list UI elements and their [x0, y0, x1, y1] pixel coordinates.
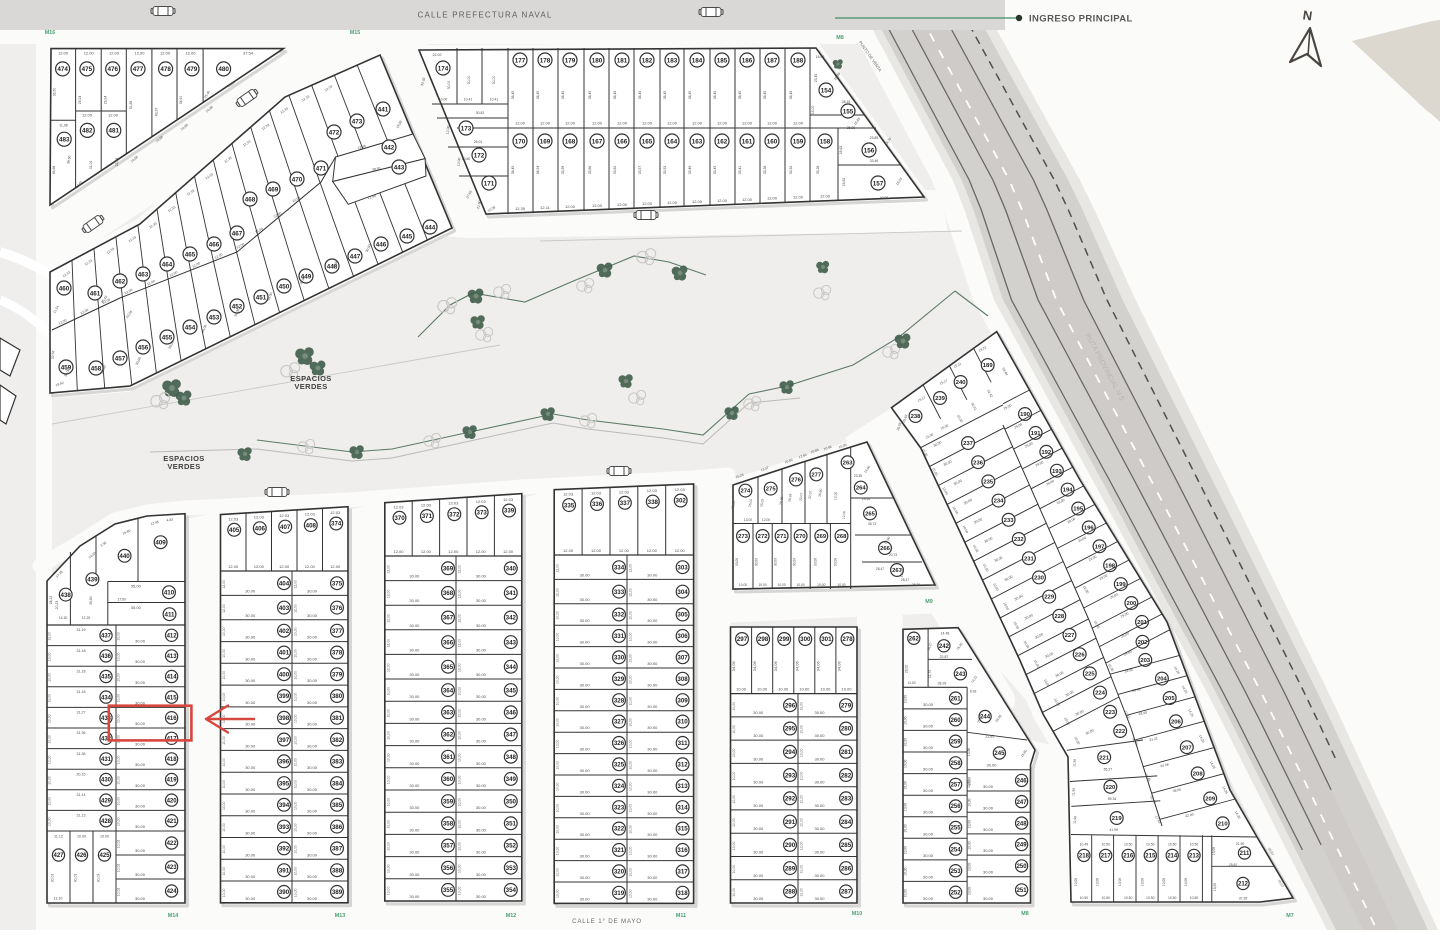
svg-text:416: 416 [167, 716, 178, 722]
svg-text:160: 160 [767, 138, 778, 145]
svg-text:31.18: 31.18 [77, 649, 86, 653]
svg-text:366: 366 [443, 639, 454, 646]
svg-text:30.00: 30.00 [409, 827, 420, 832]
svg-text:157: 157 [873, 180, 884, 187]
svg-text:10,00: 10,00 [1074, 878, 1078, 886]
svg-text:293: 293 [785, 772, 796, 779]
svg-text:10,00: 10,00 [629, 654, 633, 663]
svg-text:298: 298 [758, 636, 769, 643]
svg-text:36,80: 36,80 [89, 596, 93, 605]
svg-text:10,00: 10,00 [758, 583, 766, 587]
svg-text:223: 223 [1105, 710, 1116, 716]
svg-text:10.00: 10.00 [757, 687, 768, 692]
svg-text:38,45: 38,45 [613, 91, 617, 100]
svg-text:10,00: 10,00 [629, 889, 633, 898]
svg-text:209: 209 [1205, 797, 1216, 803]
svg-text:12,00: 12,00 [629, 588, 633, 597]
svg-text:271: 271 [777, 534, 788, 540]
svg-text:30.00: 30.00 [647, 640, 658, 645]
svg-text:315: 315 [677, 826, 688, 833]
svg-text:30.00: 30.00 [245, 765, 256, 770]
svg-text:37.54: 37.54 [243, 51, 254, 56]
svg-text:274: 274 [740, 489, 751, 495]
svg-text:31.18: 31.18 [77, 690, 86, 694]
svg-text:36,54: 36,54 [536, 166, 540, 175]
svg-text:10,00: 10,00 [800, 888, 804, 897]
svg-text:30.00: 30.00 [476, 761, 487, 766]
svg-text:10,00: 10,00 [458, 687, 462, 696]
svg-text:10,00: 10,00 [294, 736, 298, 745]
svg-text:M10: M10 [852, 911, 863, 917]
svg-text:M9: M9 [925, 599, 933, 605]
svg-text:185: 185 [717, 57, 728, 64]
svg-text:184: 184 [692, 57, 703, 64]
svg-text:255: 255 [951, 826, 962, 832]
svg-text:238: 238 [911, 414, 922, 420]
svg-text:30.00: 30.00 [986, 763, 997, 768]
svg-text:10,00: 10,00 [48, 714, 52, 723]
svg-text:389: 389 [332, 889, 343, 896]
svg-text:351: 351 [506, 821, 517, 828]
svg-text:10,00: 10,00 [294, 758, 298, 767]
svg-text:10,00: 10,00 [386, 820, 390, 829]
svg-text:451: 451 [256, 294, 267, 301]
svg-text:412: 412 [167, 634, 178, 640]
svg-text:297: 297 [737, 636, 748, 643]
svg-text:45,68: 45,68 [52, 166, 56, 175]
svg-text:299: 299 [779, 636, 790, 643]
svg-text:38,45: 38,45 [713, 91, 717, 100]
svg-text:30.00: 30.00 [307, 874, 318, 879]
svg-text:13,96: 13,96 [967, 748, 971, 756]
svg-text:430: 430 [101, 778, 112, 784]
svg-text:10.50: 10.50 [1190, 896, 1199, 900]
svg-text:12.00: 12.00 [109, 51, 120, 56]
svg-text:12.00: 12.00 [330, 564, 341, 569]
svg-text:12,00: 12,00 [458, 614, 462, 623]
svg-text:12,00: 12,00 [556, 588, 560, 597]
svg-text:405: 405 [229, 527, 240, 534]
svg-text:400: 400 [279, 672, 290, 679]
svg-text:10.50: 10.50 [1101, 843, 1110, 847]
svg-text:421: 421 [167, 819, 178, 825]
svg-text:29.54: 29.54 [862, 497, 870, 501]
svg-text:235: 235 [983, 480, 994, 486]
svg-text:251: 251 [1017, 888, 1028, 894]
svg-text:10,00: 10,00 [294, 801, 298, 810]
svg-text:10,00: 10,00 [800, 865, 804, 874]
svg-text:10,00: 10,00 [629, 825, 633, 834]
svg-text:35.89: 35.89 [847, 126, 856, 130]
svg-text:10,00: 10,00 [556, 697, 560, 706]
svg-text:420: 420 [167, 798, 178, 804]
svg-text:12.00: 12.00 [160, 51, 171, 56]
svg-text:30.00: 30.00 [476, 783, 487, 788]
svg-text:30.00: 30.00 [476, 872, 487, 877]
svg-text:11.12: 11.12 [54, 835, 63, 839]
svg-text:431: 431 [101, 757, 112, 763]
svg-text:10.00: 10.00 [439, 98, 448, 102]
svg-text:269: 269 [816, 534, 827, 540]
svg-text:264: 264 [856, 486, 867, 492]
svg-text:15,00: 15,00 [1212, 847, 1216, 855]
svg-text:396: 396 [279, 759, 290, 766]
svg-text:10,00: 10,00 [777, 583, 785, 587]
svg-text:30.00: 30.00 [580, 682, 591, 687]
svg-text:321: 321 [614, 847, 625, 854]
svg-text:10,00: 10,00 [48, 694, 52, 703]
svg-text:476: 476 [107, 66, 118, 73]
svg-text:30.00: 30.00 [245, 787, 256, 792]
svg-text:362: 362 [443, 732, 454, 739]
svg-text:30.00: 30.00 [135, 659, 146, 664]
svg-text:12.03: 12.03 [330, 510, 341, 515]
svg-text:30.15: 30.15 [77, 772, 86, 776]
svg-text:10,00: 10,00 [968, 820, 972, 828]
svg-text:181: 181 [617, 57, 628, 64]
svg-text:10,00: 10,00 [629, 697, 633, 706]
svg-text:230: 230 [1034, 576, 1045, 582]
svg-text:CALLE 1° DE MAYO: CALLE 1° DE MAYO [572, 918, 642, 925]
svg-text:303: 303 [677, 564, 688, 571]
svg-text:30.00: 30.00 [409, 694, 420, 699]
svg-text:388: 388 [332, 867, 343, 874]
svg-text:30.00: 30.00 [245, 743, 256, 748]
svg-text:30.00: 30.00 [647, 832, 658, 837]
svg-text:359: 359 [443, 798, 454, 805]
svg-text:M8: M8 [836, 35, 844, 41]
svg-text:30.00: 30.00 [647, 747, 658, 752]
svg-text:265: 265 [865, 512, 876, 518]
svg-text:12.00: 12.00 [767, 121, 778, 126]
svg-text:155: 155 [843, 108, 854, 115]
svg-text:10,00: 10,00 [1118, 878, 1122, 886]
svg-text:294: 294 [785, 749, 796, 756]
svg-text:280: 280 [841, 726, 852, 733]
svg-text:38,45: 38,45 [588, 91, 592, 100]
svg-text:239: 239 [935, 396, 946, 402]
svg-text:30.00: 30.00 [307, 743, 318, 748]
svg-text:31.13: 31.13 [77, 814, 86, 818]
svg-text:10,00: 10,00 [48, 735, 52, 744]
svg-text:38,45: 38,45 [561, 91, 565, 100]
svg-text:30.00: 30.00 [753, 826, 764, 831]
svg-text:VERDES: VERDES [294, 382, 327, 391]
svg-text:10,00: 10,00 [458, 842, 462, 851]
svg-text:257: 257 [951, 783, 962, 789]
svg-text:453: 453 [209, 314, 220, 321]
svg-text:215: 215 [1145, 854, 1156, 860]
svg-text:367: 367 [443, 615, 454, 622]
svg-text:248: 248 [1017, 821, 1028, 827]
svg-text:12.11: 12.11 [540, 205, 550, 210]
svg-text:273: 273 [738, 534, 749, 540]
svg-text:34,06: 34,06 [731, 661, 736, 672]
svg-text:12.00: 12.00 [448, 549, 459, 554]
svg-text:258: 258 [951, 761, 962, 767]
svg-text:12.00: 12.00 [563, 548, 574, 553]
svg-text:159: 159 [793, 138, 804, 145]
svg-text:30.00: 30.00 [409, 805, 420, 810]
svg-text:34,06: 34,06 [815, 661, 820, 672]
svg-text:30.00: 30.00 [580, 768, 591, 773]
svg-text:210: 210 [1218, 821, 1229, 827]
svg-text:33,99: 33,99 [561, 166, 565, 175]
svg-text:12,00: 12,00 [629, 564, 633, 573]
svg-text:469: 469 [268, 186, 279, 193]
svg-text:10,00: 10,00 [294, 823, 298, 832]
svg-text:411: 411 [165, 611, 176, 618]
svg-text:275: 275 [766, 487, 777, 493]
svg-text:10,00: 10,00 [556, 825, 560, 834]
svg-text:288: 288 [785, 889, 796, 896]
svg-text:28,47: 28,47 [876, 567, 884, 571]
svg-text:409: 409 [155, 539, 166, 546]
svg-text:30.00: 30.00 [580, 704, 591, 709]
svg-text:454: 454 [185, 324, 196, 331]
svg-text:212: 212 [1238, 882, 1249, 888]
svg-text:348: 348 [506, 754, 517, 761]
svg-text:263: 263 [843, 460, 854, 466]
svg-text:252: 252 [951, 890, 962, 896]
svg-text:30.00: 30.00 [307, 787, 318, 792]
svg-text:194: 194 [1063, 488, 1074, 494]
svg-text:167: 167 [592, 138, 603, 145]
svg-text:12,00: 12,00 [458, 639, 462, 648]
svg-text:12.03: 12.03 [503, 497, 514, 502]
svg-text:30.00: 30.00 [983, 827, 994, 832]
svg-text:38,45: 38,45 [663, 91, 667, 100]
svg-text:30.00: 30.00 [307, 722, 318, 727]
svg-text:10,00: 10,00 [732, 842, 736, 851]
svg-text:10,02: 10,02 [117, 840, 121, 849]
svg-text:30.00: 30.00 [135, 872, 146, 877]
svg-text:30.00: 30.00 [580, 640, 591, 645]
svg-text:34,06: 34,06 [752, 661, 757, 672]
svg-text:461: 461 [90, 290, 101, 297]
svg-text:26,01: 26,01 [474, 140, 483, 144]
svg-text:12.00: 12.00 [667, 200, 678, 205]
svg-text:10.50: 10.50 [1168, 896, 1177, 900]
svg-text:464: 464 [162, 261, 173, 268]
svg-text:20,73: 20,73 [889, 553, 897, 557]
svg-text:10,00: 10,00 [629, 782, 633, 791]
svg-text:12.00: 12.00 [82, 113, 93, 118]
svg-text:428: 428 [101, 819, 112, 825]
svg-text:30.00: 30.00 [135, 680, 146, 685]
svg-text:320: 320 [614, 869, 625, 876]
svg-text:10,00: 10,00 [800, 795, 804, 804]
svg-text:304: 304 [677, 589, 688, 596]
svg-text:30.00: 30.00 [135, 803, 146, 808]
svg-text:10.41: 10.41 [464, 98, 473, 102]
svg-text:233: 233 [1004, 518, 1015, 524]
svg-text:328: 328 [614, 697, 625, 704]
svg-text:329: 329 [614, 676, 625, 683]
svg-text:30.00: 30.00 [580, 618, 591, 623]
svg-text:12.00: 12.00 [108, 113, 119, 118]
svg-text:334: 334 [614, 564, 625, 571]
svg-text:10,00: 10,00 [904, 803, 908, 811]
svg-text:30.00: 30.00 [983, 784, 994, 789]
svg-text:382: 382 [332, 737, 343, 744]
svg-text:12,00: 12,00 [556, 564, 560, 573]
svg-text:30.00: 30.00 [814, 873, 825, 878]
svg-text:30.00: 30.00 [580, 747, 591, 752]
svg-text:36,20: 36,20 [912, 583, 920, 587]
svg-text:30.82: 30.82 [476, 111, 485, 115]
svg-text:282: 282 [841, 772, 852, 779]
svg-text:237: 237 [963, 441, 974, 447]
svg-text:12,00: 12,00 [222, 580, 226, 589]
svg-text:40.96: 40.96 [880, 196, 889, 200]
svg-text:10,00: 10,00 [48, 653, 52, 662]
svg-text:14.30: 14.30 [59, 616, 68, 620]
svg-text:30.00: 30.00 [923, 874, 934, 879]
svg-text:166: 166 [617, 138, 628, 145]
svg-text:10,00: 10,00 [458, 731, 462, 740]
svg-text:345: 345 [506, 687, 517, 694]
svg-text:30.00: 30.00 [409, 783, 420, 788]
svg-text:38,45: 38,45 [763, 91, 767, 100]
svg-text:13.00: 13.00 [744, 518, 752, 522]
svg-text:17,50: 17,50 [118, 598, 127, 602]
svg-text:10,00: 10,00 [968, 887, 972, 895]
svg-text:12.00: 12.00 [592, 203, 603, 208]
svg-text:10,00: 10,00 [386, 864, 390, 873]
svg-text:30.00: 30.00 [647, 854, 658, 859]
svg-text:193: 193 [1052, 469, 1063, 475]
svg-text:10,00: 10,00 [556, 718, 560, 727]
svg-text:191: 191 [1031, 431, 1042, 437]
svg-text:262: 262 [909, 636, 920, 642]
svg-text:11,98: 11,98 [1073, 816, 1078, 824]
svg-text:12.00: 12.00 [305, 564, 316, 569]
svg-text:10,00: 10,00 [117, 714, 121, 723]
svg-text:37.35: 37.35 [1239, 897, 1248, 901]
svg-text:343: 343 [506, 639, 517, 646]
svg-text:10,00: 10,00 [817, 583, 825, 587]
svg-text:10,00: 10,00 [294, 714, 298, 723]
svg-text:313: 313 [677, 783, 688, 790]
svg-text:30.00: 30.00 [476, 694, 487, 699]
svg-text:30.00: 30.00 [814, 803, 825, 808]
svg-text:30.00: 30.00 [135, 783, 146, 788]
svg-text:30,00: 30,00 [735, 558, 739, 566]
svg-text:10,00: 10,00 [629, 611, 633, 620]
svg-text:33,66: 33,66 [588, 166, 592, 175]
svg-text:10,00: 10,00 [556, 654, 560, 663]
svg-text:163: 163 [692, 138, 703, 145]
svg-text:12.00: 12.00 [540, 121, 551, 126]
svg-text:384: 384 [332, 780, 343, 787]
svg-text:30.00: 30.00 [580, 811, 591, 816]
svg-text:330: 330 [614, 655, 625, 662]
svg-text:10.00: 10.00 [799, 687, 810, 692]
svg-text:10,00: 10,00 [117, 776, 121, 785]
svg-text:12,00: 12,00 [458, 663, 462, 672]
svg-text:289: 289 [785, 865, 796, 872]
svg-text:10,00: 10,00 [117, 694, 121, 703]
svg-text:479: 479 [187, 66, 198, 73]
svg-text:10,00: 10,00 [222, 823, 226, 832]
svg-text:390: 390 [279, 889, 290, 896]
svg-text:10,00: 10,00 [904, 716, 908, 724]
svg-text:10.50: 10.50 [1168, 843, 1177, 847]
svg-text:356: 356 [443, 865, 454, 872]
svg-text:10,00: 10,00 [796, 583, 804, 587]
svg-text:12.00: 12.00 [642, 121, 653, 126]
svg-text:437: 437 [101, 634, 112, 640]
svg-text:30.00: 30.00 [245, 722, 256, 727]
svg-text:10.50: 10.50 [1124, 896, 1133, 900]
svg-text:195: 195 [1073, 507, 1084, 513]
svg-text:164: 164 [667, 138, 678, 145]
svg-text:16,62: 16,62 [842, 178, 846, 187]
svg-text:352: 352 [506, 843, 517, 850]
svg-text:30.00: 30.00 [135, 762, 146, 767]
svg-text:30.00: 30.00 [476, 598, 487, 603]
svg-text:10,00: 10,00 [629, 740, 633, 749]
svg-text:30.00: 30.00 [753, 710, 764, 715]
svg-text:436: 436 [101, 654, 112, 660]
svg-text:10,00: 10,00 [117, 797, 121, 806]
svg-text:12.03: 12.03 [448, 501, 459, 506]
svg-text:10,00: 10,00 [222, 693, 226, 702]
svg-text:205: 205 [1165, 696, 1176, 702]
svg-text:427: 427 [53, 853, 64, 859]
svg-text:272: 272 [758, 534, 769, 540]
svg-text:20,80: 20,80 [462, 157, 471, 161]
svg-text:10,00: 10,00 [386, 687, 390, 696]
svg-text:33,57: 33,57 [638, 166, 642, 175]
svg-text:32,58: 32,58 [51, 350, 56, 359]
svg-text:225: 225 [1085, 672, 1096, 678]
svg-text:30.00: 30.00 [647, 768, 658, 773]
svg-text:30.00: 30.00 [245, 700, 256, 705]
svg-text:10,00: 10,00 [800, 748, 804, 757]
svg-text:30.00: 30.00 [753, 803, 764, 808]
svg-text:462: 462 [115, 278, 126, 285]
svg-text:186: 186 [742, 57, 753, 64]
svg-text:10,00: 10,00 [222, 801, 226, 810]
svg-text:475: 475 [82, 66, 93, 73]
svg-text:425: 425 [99, 853, 110, 859]
svg-text:10,00: 10,00 [904, 824, 908, 832]
svg-text:30.00: 30.00 [753, 780, 764, 785]
svg-text:30.00: 30.00 [307, 700, 318, 705]
svg-text:211: 211 [1240, 851, 1250, 857]
svg-text:23.35: 23.35 [854, 474, 862, 478]
svg-text:10,00: 10,00 [800, 842, 804, 851]
svg-text:208: 208 [1193, 772, 1204, 778]
svg-text:249: 249 [1017, 843, 1028, 849]
svg-text:30,00: 30,00 [834, 558, 838, 566]
svg-text:10,00: 10,00 [458, 798, 462, 807]
svg-text:23.89: 23.89 [870, 136, 879, 140]
svg-text:214: 214 [1167, 854, 1178, 860]
svg-text:33,62: 33,62 [613, 166, 617, 175]
svg-text:415: 415 [167, 695, 178, 701]
svg-text:470: 470 [292, 176, 303, 183]
svg-text:30,03: 30,03 [74, 874, 78, 883]
svg-text:30.00: 30.00 [245, 678, 256, 683]
svg-text:10,00: 10,00 [556, 889, 560, 898]
svg-text:261: 261 [951, 696, 962, 702]
svg-text:403: 403 [279, 605, 290, 612]
svg-text:302: 302 [676, 498, 687, 505]
svg-text:30.00: 30.00 [983, 870, 994, 875]
